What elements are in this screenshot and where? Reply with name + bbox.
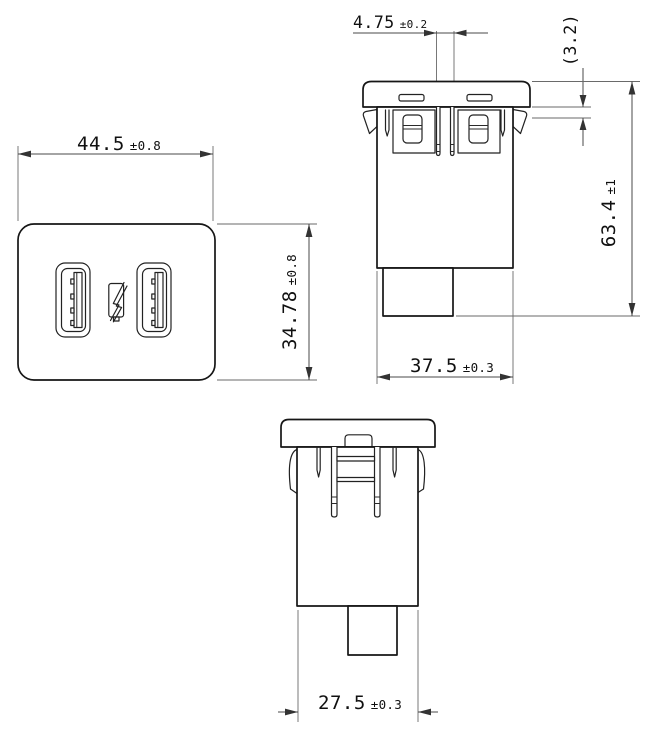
technical-drawing-sheet: 44.5±0.8 34.78±0.8: [0, 0, 663, 737]
arrow-down-icon: [306, 367, 313, 380]
pin-crossbar: [337, 478, 375, 482]
side-view: 4.75±0.2 (3.2) 63.4±1: [353, 13, 640, 384]
dimension-pin-spacing: 4.75±0.2: [353, 13, 488, 36]
dim-total-height-label: 63.4±1: [598, 179, 620, 247]
connector-body-rear: [297, 447, 418, 606]
latch-hook-right: [513, 110, 527, 134]
usb-port-left: [56, 263, 90, 337]
arrow-right-icon: [500, 374, 513, 381]
latch-edge-right: [418, 450, 425, 493]
arrow-up-icon: [580, 118, 587, 130]
arrow-left-icon: [18, 151, 31, 158]
arrow-right-icon: [200, 151, 213, 158]
dim-flange-ref-label: (3.2): [561, 14, 580, 66]
latch-hook-left: [363, 110, 377, 134]
latch-edge-left: [289, 450, 297, 494]
rear-view: 27.5±0.3: [278, 420, 438, 723]
dim-body-depth-label: 37.5±0.3: [410, 355, 494, 377]
dimension-front-width: 44.5±0.8: [18, 133, 213, 221]
arrow-up-icon: [629, 82, 636, 95]
arrow-left-icon: [454, 30, 467, 37]
shell-block-right: [458, 110, 500, 153]
rear-boss: [348, 606, 397, 655]
dim-front-height-label: 34.78±0.8: [279, 254, 301, 350]
flange-cap: [363, 82, 530, 108]
dimension-front-height: 34.78±0.8: [217, 224, 317, 380]
cap-slot: [399, 95, 424, 102]
dim-body-width-label: 27.5±0.3: [318, 692, 402, 714]
arrow-right-icon: [285, 709, 298, 716]
pin-crossbar: [337, 457, 375, 462]
front-view: 44.5±0.8 34.78±0.8: [18, 133, 317, 380]
arrow-left-icon: [418, 709, 431, 716]
cap-slot: [467, 95, 492, 102]
rear-boss-side: [383, 268, 453, 316]
arrow-up-icon: [306, 224, 313, 237]
arrow-left-icon: [377, 374, 390, 381]
shell-block-left: [393, 110, 435, 153]
flange-cap-rear: [281, 420, 435, 448]
drawing-canvas: 44.5±0.8 34.78±0.8: [0, 0, 663, 737]
dim-pin-spacing-label: 4.75±0.2: [353, 13, 427, 32]
dimension-flange-ref: (3.2): [532, 14, 591, 146]
usb-port-right: [137, 263, 171, 337]
arrow-down-icon: [629, 303, 636, 316]
dim-front-width-label: 44.5±0.8: [77, 133, 161, 155]
arrow-down-icon: [580, 95, 587, 107]
